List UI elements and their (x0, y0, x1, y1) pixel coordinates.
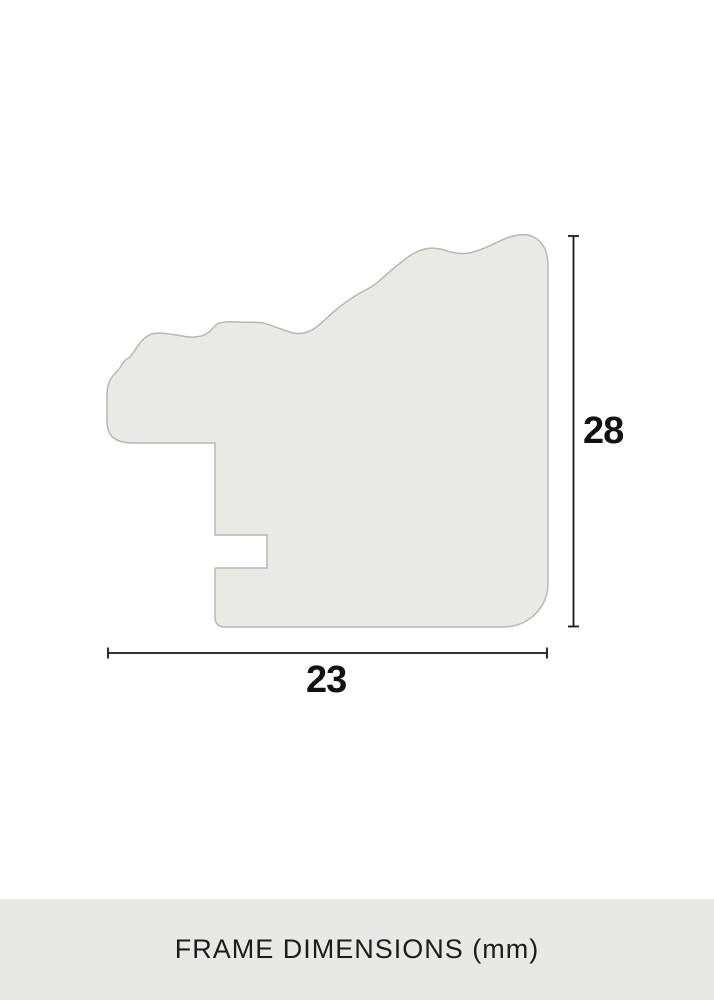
height-dimension-line (568, 236, 579, 627)
height-dimension-label: 28 (583, 412, 623, 450)
width-dimension-line (108, 648, 547, 659)
caption-text: FRAME DIMENSIONS (mm) (175, 934, 540, 965)
caption-bar: FRAME DIMENSIONS (mm) (0, 899, 714, 1000)
width-dimension-label: 23 (306, 661, 346, 699)
frame-profile-cross-section (107, 235, 548, 627)
dimension-drawing (0, 0, 714, 1000)
frame-dimensions-figure: 28 23 FRAME DIMENSIONS (mm) (0, 0, 714, 1000)
